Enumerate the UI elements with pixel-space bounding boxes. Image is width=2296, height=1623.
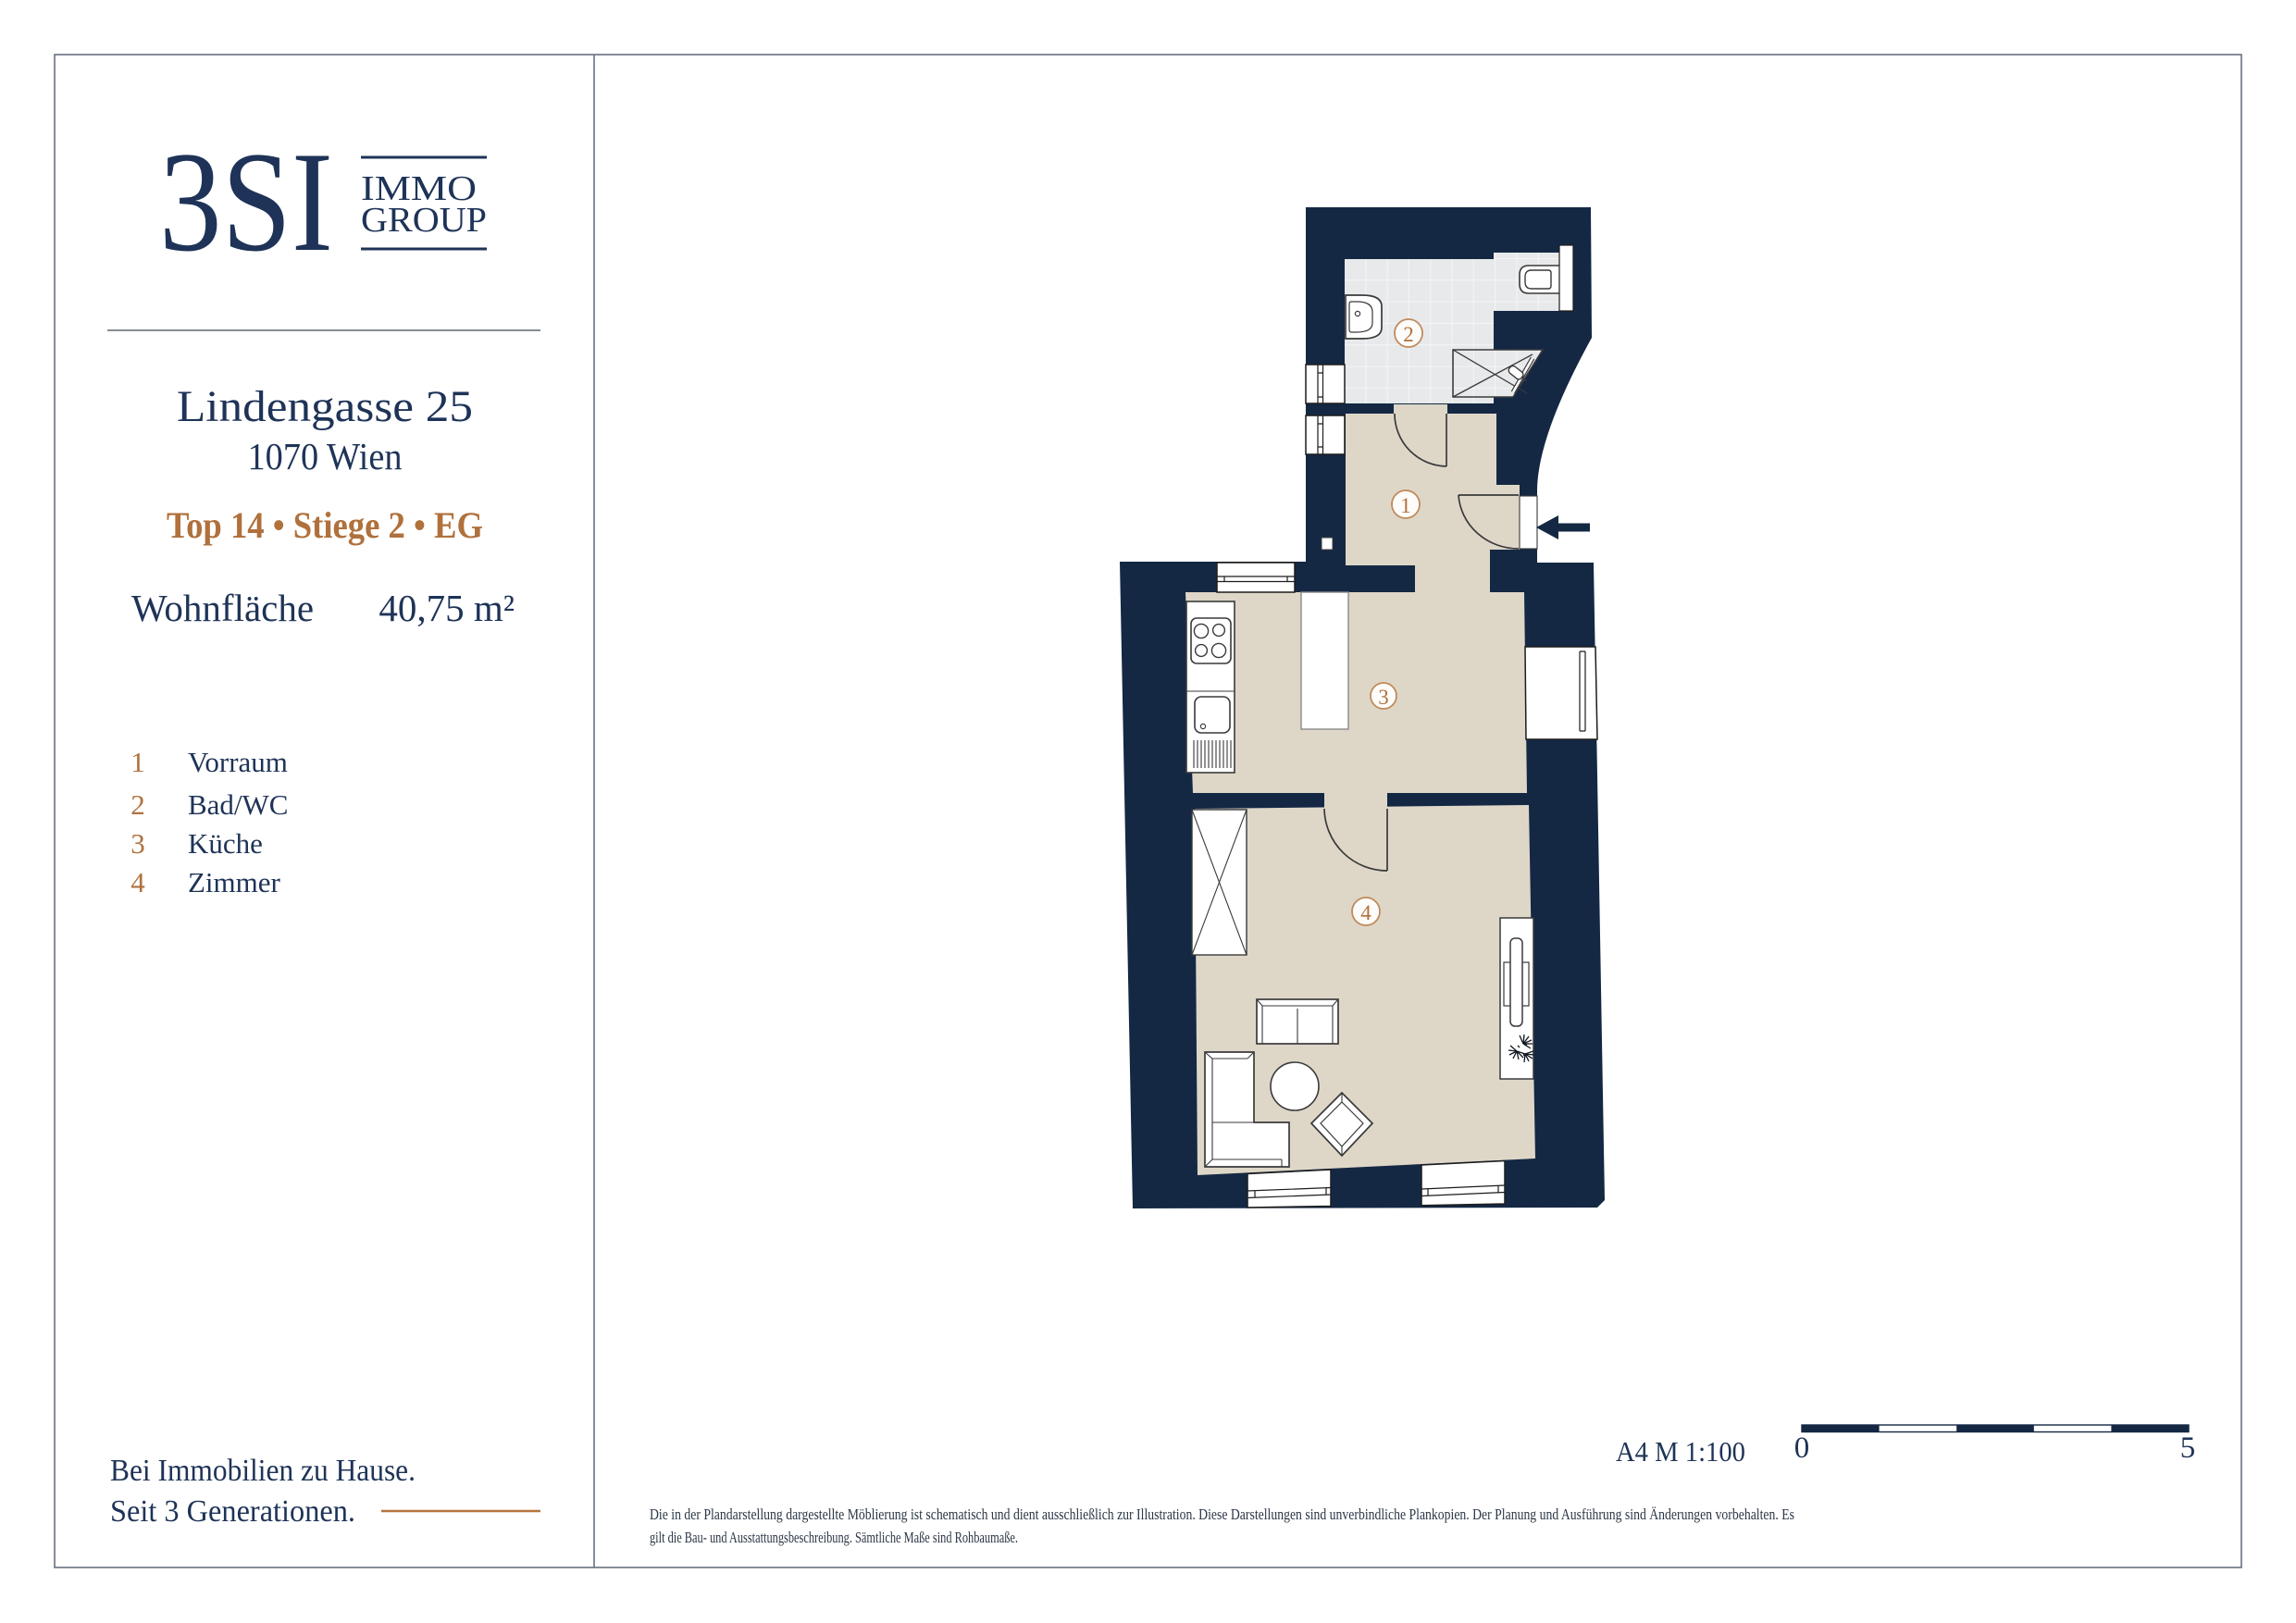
svg-text:2: 2 xyxy=(1403,323,1414,346)
svg-text:1070 Wien: 1070 Wien xyxy=(248,435,403,477)
svg-text:gilt die Bau- und Ausstattungs: gilt die Bau- und Ausstattungsbeschreibu… xyxy=(650,1529,1018,1546)
svg-text:0: 0 xyxy=(1794,1431,1810,1465)
svg-text:Top 14 • Stiege 2 • EG: Top 14 • Stiege 2 • EG xyxy=(167,504,483,546)
svg-text:Küche: Küche xyxy=(188,827,263,860)
svg-text:Lindengasse 25: Lindengasse 25 xyxy=(177,382,473,431)
svg-text:40,75 m²: 40,75 m² xyxy=(379,587,515,629)
svg-text:2: 2 xyxy=(130,788,145,821)
svg-text:4: 4 xyxy=(1360,901,1371,924)
svg-text:5: 5 xyxy=(2180,1431,2196,1465)
svg-text:Vorraum: Vorraum xyxy=(188,746,288,778)
svg-text:3: 3 xyxy=(130,827,145,860)
svg-text:A4 M 1:100: A4 M 1:100 xyxy=(1616,1435,1745,1468)
svg-text:4: 4 xyxy=(130,866,145,898)
svg-text:1: 1 xyxy=(1400,494,1411,517)
svg-text:Zimmer: Zimmer xyxy=(188,866,281,898)
svg-text:Bei Immobilien zu Hause.: Bei Immobilien zu Hause. xyxy=(110,1454,416,1488)
svg-text:Wohnfläche: Wohnfläche xyxy=(131,587,314,629)
svg-text:GROUP: GROUP xyxy=(361,201,487,240)
svg-text:Seit 3 Generationen.: Seit 3 Generationen. xyxy=(110,1494,355,1529)
svg-text:1: 1 xyxy=(130,746,145,778)
svg-text:3: 3 xyxy=(1378,686,1389,709)
svg-text:Bad/WC: Bad/WC xyxy=(188,788,289,821)
svg-text:3SI: 3SI xyxy=(159,122,333,281)
svg-text:Die in der Plandarstellung dar: Die in der Plandarstellung dargestellte … xyxy=(650,1505,1794,1523)
